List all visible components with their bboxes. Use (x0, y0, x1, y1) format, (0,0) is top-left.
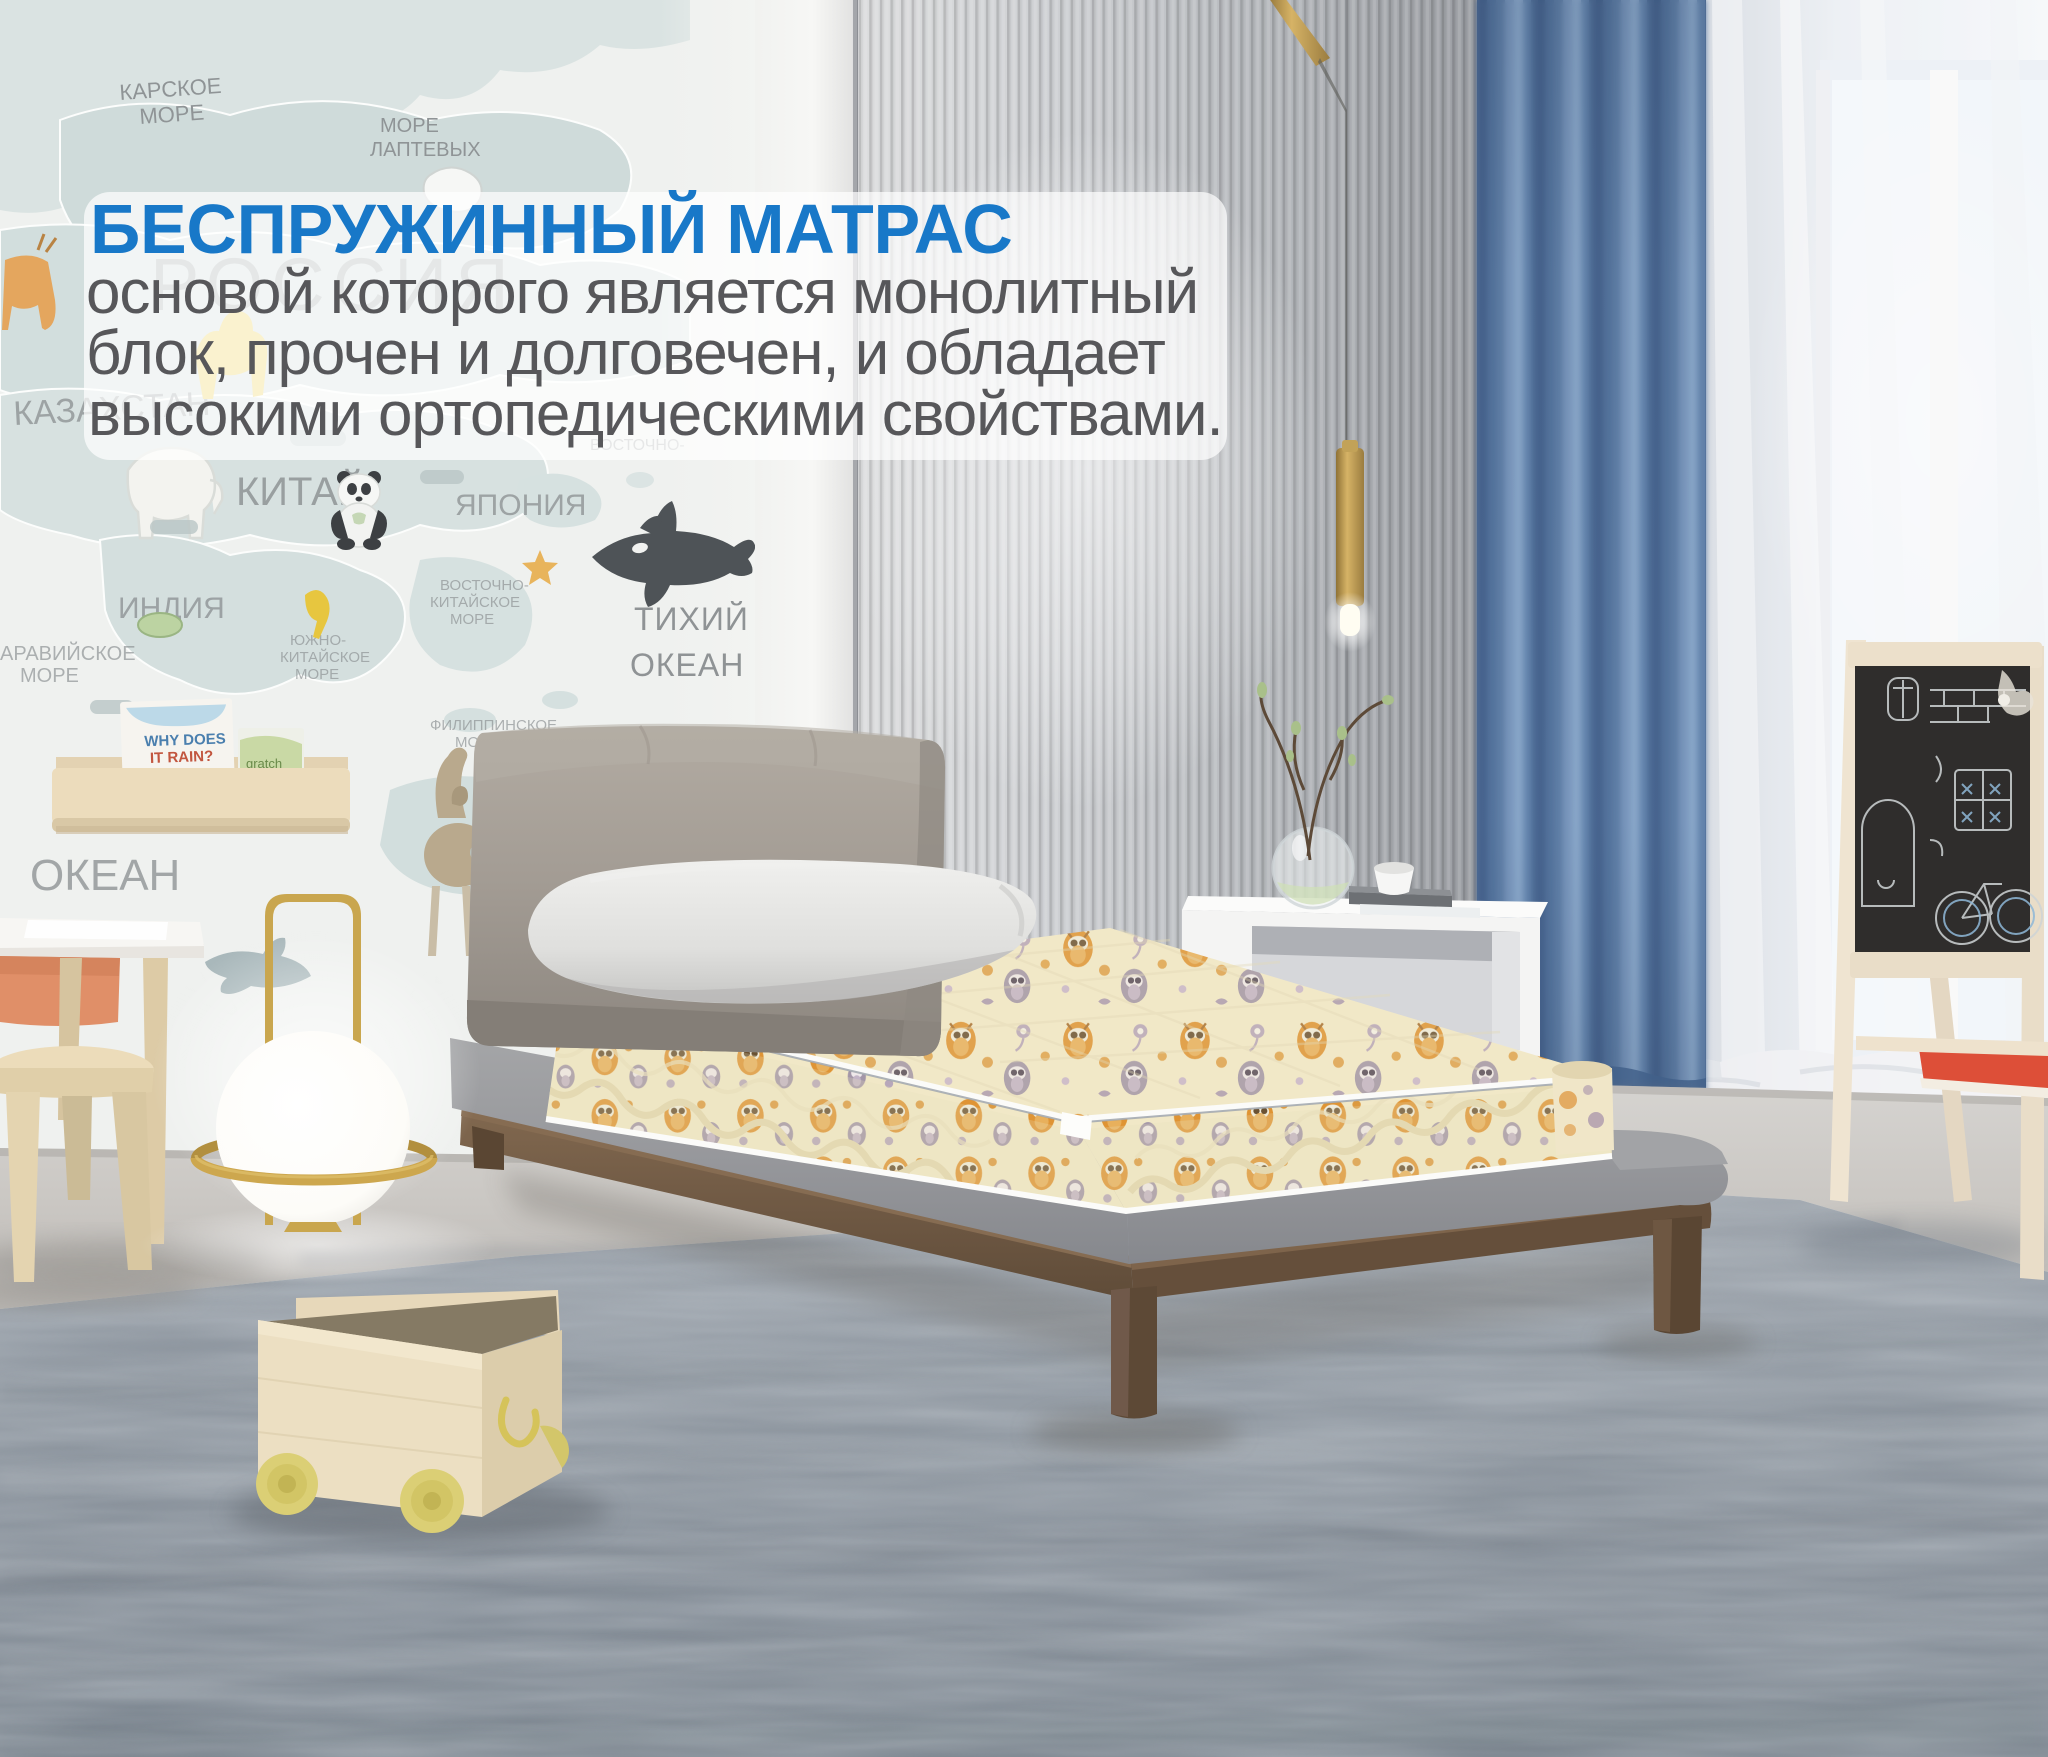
svg-text:ОКЕАН: ОКЕАН (30, 851, 180, 900)
svg-text:ЯПОНИЯ: ЯПОНИЯ (455, 489, 586, 522)
svg-text:МОРЕ: МОРЕ (20, 665, 79, 687)
svg-text:IT RAIN?: IT RAIN? (150, 748, 214, 767)
svg-text:ЛАПТЕВЫХ: ЛАПТЕВЫХ (370, 139, 481, 161)
svg-text:МОРЕ: МОРЕ (450, 611, 494, 628)
svg-text:ОКЕАН: ОКЕАН (630, 647, 744, 683)
svg-text:МОРЕ: МОРЕ (380, 115, 439, 137)
svg-text:МОРЕ: МОРЕ (139, 100, 205, 129)
svg-text:КИТАЙСКОЕ: КИТАЙСКОЕ (430, 593, 520, 611)
svg-text:МОРЕ: МОРЕ (295, 666, 339, 683)
svg-text:ТИХИЙ: ТИХИЙ (634, 601, 749, 637)
svg-text:АРАВИЙСКОЕ: АРАВИЙСКОЕ (0, 641, 136, 665)
svg-text:WHY DOES: WHY DOES (144, 730, 226, 750)
svg-text:ВОСТОЧНО-: ВОСТОЧНО- (440, 577, 529, 594)
svg-text:КИТАЙСКОЕ: КИТАЙСКОЕ (280, 648, 370, 666)
